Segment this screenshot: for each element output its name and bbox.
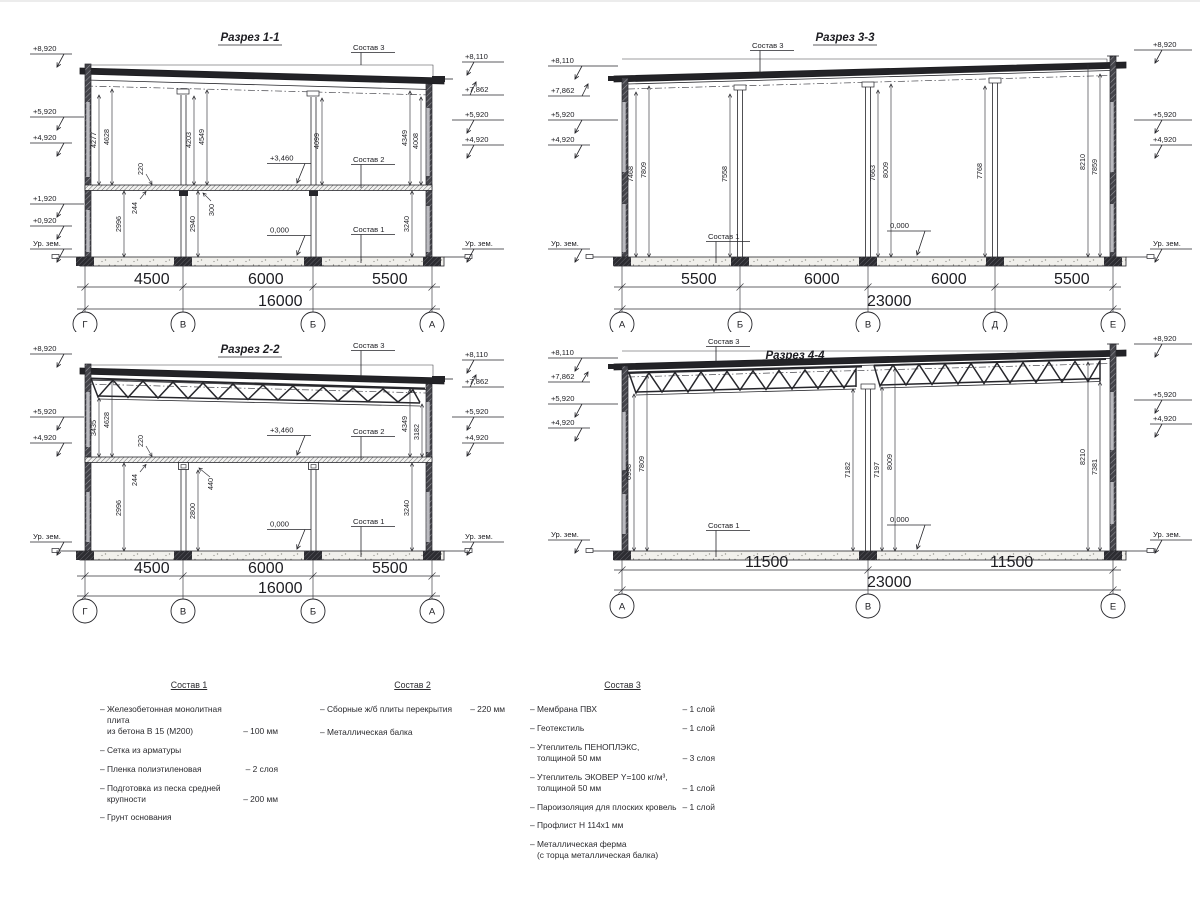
window-strip	[426, 402, 429, 452]
legend-item-text: – Геотекстиль	[530, 723, 584, 734]
legend-item: – Утеплитель ЭКОВЕР Y=100 кг/м³, толщино…	[530, 772, 715, 794]
dim-label: 7182	[843, 462, 852, 478]
dim-label: 7381	[1090, 459, 1099, 475]
level-mark-label: +3,460	[270, 154, 293, 163]
level-label: +4,920	[465, 433, 488, 442]
legend-sostav-2: Состав 2 – Сборные ж/б плиты перекрытия …	[320, 680, 505, 746]
dim-label: 7809	[637, 456, 646, 472]
callout-label: Состав 3	[752, 41, 784, 50]
dim-label: 220	[136, 435, 145, 447]
level-marks-right: +8,920 +5,920 +4,920 Ур. зем.	[1134, 334, 1192, 553]
dim-label: 8009	[885, 454, 894, 470]
dim-label: 7558	[720, 166, 729, 182]
section-1-1-title: Разрез 1-1	[218, 32, 282, 45]
legend-item-text: – Утеплитель ЭКОВЕР Y=100 кг/м³, толщино…	[530, 772, 668, 794]
level-marks-left: +8,110 +7,862 +5,920 +4,920 Ур. зем.	[548, 56, 618, 262]
legend-item-text: – Металлическая балка	[320, 727, 413, 738]
grid-bubble-label: А	[429, 320, 436, 331]
total-dim: 16000	[258, 293, 303, 310]
ground-slab	[80, 551, 444, 560]
grid-bubble-label: В	[180, 320, 186, 331]
level-marks-right: +8,110 +7,862 +5,920 +4,920 Ур. зем.	[452, 52, 504, 262]
legend-title: Состав 1	[100, 680, 278, 690]
dim-label: 4008	[411, 133, 420, 149]
level-marks-left: +8,920 +5,920 +4,920 +1,920 +0,920 Ур. з…	[30, 44, 84, 262]
level-label: +4,920	[551, 418, 574, 427]
grid-bubble-label: А	[619, 320, 626, 331]
level-marks-interior: 0,000	[887, 221, 931, 255]
level-label: Ур. зем.	[551, 239, 579, 248]
grid-bubble-label: Г	[82, 607, 87, 618]
level-label: Ур. зем.	[465, 532, 493, 541]
legend-item: – Сборные ж/б плиты перекрытия – 220 мм	[320, 704, 505, 715]
window-strip	[622, 412, 625, 470]
window-strip	[426, 108, 429, 176]
dim-label: 7663	[868, 165, 877, 181]
level-marks-left: +8,920 +5,920 +4,920 Ур. зем.	[30, 344, 84, 555]
legend-item: – Железобетонная монолитная плита из бет…	[100, 704, 278, 737]
window-strip	[622, 494, 625, 534]
section-title: Разрез 2-2	[220, 344, 280, 356]
window-strip	[86, 392, 89, 447]
dim-label: 4203	[184, 132, 193, 148]
callout-label: Состав 1	[353, 225, 385, 234]
level-label: +8,110	[465, 52, 488, 61]
span-dim: 5500	[681, 271, 717, 288]
window-strip	[1110, 482, 1113, 524]
level-label: Ур. зем.	[551, 530, 579, 539]
legend-item-value: – 1 слой	[677, 704, 715, 715]
grid-bubble-label: Е	[1110, 602, 1116, 613]
span-dim: 11500	[745, 554, 788, 571]
legend-item-text: – Профлист Н 114х1 мм	[530, 820, 623, 831]
dim-label: 4349	[400, 130, 409, 146]
columns	[179, 463, 319, 552]
level-marks-right: +8,920 +5,920 +4,920 Ур. зем.	[1134, 40, 1192, 262]
dim-label: 8009	[881, 162, 890, 178]
span-dim: 5500	[372, 560, 408, 577]
bottom-dimensions: 5500 6000 6000 5500 23000	[614, 266, 1121, 313]
legend-item-value: – 3 слоя	[677, 753, 715, 764]
dim-label: 2940	[188, 216, 197, 232]
grid-bubble-label: Б	[737, 320, 743, 331]
dim-label: 7859	[1090, 159, 1099, 175]
level-label: +5,920	[33, 407, 56, 416]
level-label: +8,920	[33, 44, 56, 53]
legend-item-text: – Сборные ж/б плиты перекрытия	[320, 704, 452, 715]
level-label: +4,920	[33, 433, 56, 442]
level-label: +8,110	[551, 348, 574, 357]
legend-item-text: – Пленка полиэтиленовая	[100, 764, 202, 775]
legend-sostav-3: Состав 3 – Мембрана ПВХ – 1 слой – Геоте…	[530, 680, 715, 869]
dim-label: 2996	[114, 500, 123, 516]
dim-label: 440	[206, 478, 215, 490]
dim-label: 3182	[412, 424, 421, 440]
level-marks-interior: +3,460 0,000	[267, 154, 311, 256]
level-mark-label: 0,000	[270, 520, 289, 529]
level-label: +8,110	[465, 350, 488, 359]
floor-slab-level2	[85, 185, 432, 191]
grid-bubble-label: В	[865, 320, 871, 331]
legend-title: Состав 2	[320, 680, 505, 690]
legend-item-text: – Железобетонная монолитная плита из бет…	[100, 704, 237, 737]
level-label: +5,920	[33, 107, 56, 116]
span-dim: 5500	[1054, 271, 1090, 288]
legend-item: – Грунт основания	[100, 812, 278, 823]
roof-gutter	[608, 364, 615, 369]
callout-label: Состав 2	[353, 427, 385, 436]
grid-bubbles: А Б В Д Е	[610, 312, 1125, 332]
roof-truss-bay2	[874, 359, 1106, 388]
legend-item-value: – 1 слой	[677, 783, 715, 794]
window-strip	[86, 492, 89, 542]
roof-truss	[91, 379, 425, 407]
materials-legend: Состав 1 – Железобетонная монолитная пли…	[0, 680, 1200, 900]
legend-item-value: – 1 слой	[677, 723, 715, 734]
dim-label: 4549	[197, 129, 206, 145]
level-label: +5,920	[1153, 390, 1176, 399]
legend-item: – Утеплитель ПЕНОПЛЭКС, толщиной 50 мм –…	[530, 742, 715, 764]
level-marks-interior: +3,460 0,000	[267, 426, 311, 550]
callout-label: Состав 2	[353, 155, 385, 164]
window-strip	[426, 206, 429, 252]
level-mark-label: +3,460	[270, 426, 293, 435]
span-dim: 5500	[372, 271, 408, 288]
grid-bubble-label: Б	[310, 607, 316, 618]
level-label: +5,920	[1153, 110, 1176, 119]
level-label: +7,862	[551, 372, 574, 381]
grid-bubble-label: А	[429, 607, 436, 618]
dim-label: 2996	[114, 216, 123, 232]
grid-bubble-label: Г	[82, 320, 87, 331]
level-label: +8,920	[33, 344, 56, 353]
callout-label: Состав 1	[353, 517, 385, 526]
dim-label: 8210	[1078, 154, 1087, 170]
level-label: +4,920	[33, 133, 56, 142]
section-title: Разрез 3-3	[815, 32, 875, 44]
span-dim: 4500	[134, 560, 170, 577]
building-structure	[52, 364, 472, 560]
span-dim: 6000	[248, 271, 284, 288]
grid-bubbles: Г В Б А	[73, 599, 444, 623]
window-strip	[1110, 102, 1113, 172]
dim-label: 300	[207, 204, 216, 216]
drawing-sheet: Разрез 1-1	[0, 0, 1200, 902]
section-1-1: Разрез 1-1	[0, 2, 540, 332]
grid-bubble-label: В	[865, 602, 871, 613]
level-label: Ур. зем.	[1153, 239, 1181, 248]
legend-item-text: – Сетка из арматуры	[100, 745, 181, 756]
legend-item-value: – 1 слой	[677, 802, 715, 813]
legend-item-value: – 2 слоя	[240, 764, 278, 775]
total-dim: 16000	[258, 580, 303, 597]
dim-label: 3435	[89, 420, 98, 436]
dim-label: 4099	[312, 133, 321, 149]
span-dim: 6000	[804, 271, 840, 288]
dim-label: 2800	[188, 503, 197, 519]
level-marks-right: +8,110 +7,862 +5,920 +4,920 Ур. зем.	[452, 350, 504, 555]
legend-item-value: – 100 мм	[237, 726, 278, 737]
dim-label: 220	[136, 163, 145, 175]
callout-label: Состав 1	[708, 521, 740, 530]
grid-bubble-label: А	[619, 602, 626, 613]
legend-item: – Металлическая ферма (с торца металличе…	[530, 839, 715, 861]
level-label: +0,920	[33, 216, 56, 225]
grid-bubble-label: Е	[1110, 320, 1116, 331]
roof-gutter	[432, 76, 445, 82]
legend-item-text: – Металлическая ферма (с торца металличе…	[530, 839, 658, 861]
legend-sostav-1: Состав 1 – Железобетонная монолитная пли…	[100, 680, 278, 831]
ground-slab	[80, 257, 444, 266]
level-label: +4,920	[1153, 414, 1176, 423]
grid-bubbles: А В Е	[610, 594, 1125, 618]
dim-label: 7768	[975, 163, 984, 179]
level-label: +5,920	[551, 394, 574, 403]
grid-bubbles: Г В Б А	[73, 312, 444, 332]
level-marks-left: +8,110 +7,862 +5,920 +4,920 Ур. зем.	[548, 348, 618, 553]
dim-label: 4349	[400, 416, 409, 432]
legend-item: – Сетка из арматуры	[100, 745, 278, 756]
legend-item-value: – 220 мм	[464, 704, 505, 715]
level-label: Ур. зем.	[465, 239, 493, 248]
legend-item-value: – 200 мм	[237, 794, 278, 805]
window-strip	[622, 204, 625, 252]
section-2-2: Разрез 2-2	[0, 332, 540, 632]
span-dim: 4500	[134, 271, 170, 288]
section-4-4: Разрез 4-4	[540, 332, 1200, 632]
level-label: +5,920	[465, 407, 488, 416]
span-dim: 6000	[248, 560, 284, 577]
window-strip	[86, 210, 89, 252]
level-mark-label: 0,000	[890, 515, 909, 524]
callout-label: Состав 3	[708, 337, 740, 346]
dim-label: 7468	[626, 166, 635, 182]
dim-label: 3240	[402, 500, 411, 516]
dim-label: 3240	[402, 216, 411, 232]
legend-item-text: – Пароизоляция для плоских кровель	[530, 802, 676, 813]
bottom-dimensions: 4500 6000 5500 16000	[77, 560, 440, 600]
material-callouts: Состав 3 Состав 2 Состав 1	[351, 341, 395, 557]
legend-item: – Металлическая балка	[320, 727, 505, 738]
level-mark-label: 0,000	[270, 226, 289, 235]
level-label: +8,920	[1153, 334, 1176, 343]
level-label: +4,920	[1153, 135, 1176, 144]
legend-title: Состав 3	[530, 680, 715, 690]
section-3-3: Разрез 3-3	[540, 2, 1200, 332]
level-mark-label: 0,000	[890, 221, 909, 230]
level-label: +7,862	[551, 86, 574, 95]
level-label: +7,862	[465, 85, 488, 94]
roof-gutter	[432, 376, 445, 382]
level-label: Ур. зем.	[1153, 530, 1181, 539]
bottom-dimensions: 4500 6000 5500 16000	[77, 266, 440, 313]
dim-label: 7809	[639, 162, 648, 178]
legend-item-text: – Утеплитель ПЕНОПЛЭКС, толщиной 50 мм	[530, 742, 639, 764]
legend-item: – Пленка полиэтиленовая – 2 слоя	[100, 764, 278, 775]
level-label: +8,920	[1153, 40, 1176, 49]
legend-item: – Мембрана ПВХ – 1 слой	[530, 704, 715, 715]
legend-item: – Геотекстиль – 1 слой	[530, 723, 715, 734]
level-label: Ур. зем.	[33, 532, 61, 541]
dim-label: 6998	[624, 464, 633, 480]
dim-label: 4628	[102, 129, 111, 145]
span-dim: 6000	[931, 271, 967, 288]
dim-label: 4628	[102, 412, 111, 428]
vertical-dimensions: 7468 7809 7558 7663 8009 7768 8210 7859	[626, 64, 1100, 257]
level-label: +5,920	[465, 110, 488, 119]
floor-slab-level2	[85, 457, 432, 463]
span-dim: 11500	[990, 554, 1033, 571]
section-2-2-title: Разрез 2-2	[218, 344, 282, 357]
legend-item: – Пароизоляция для плоских кровель – 1 с…	[530, 802, 715, 813]
dim-label: 7197	[872, 462, 881, 478]
section-3-3-title: Разрез 3-3	[813, 32, 877, 45]
dim-label: 4277	[89, 132, 98, 148]
building-structure	[586, 56, 1154, 266]
level-label: +4,920	[465, 135, 488, 144]
window-strip	[1110, 392, 1113, 450]
callout-label: Состав 3	[353, 43, 385, 52]
legend-item-text: – Подготовка из песка средней крупности	[100, 783, 221, 805]
callout-label: Состав 1	[708, 232, 740, 241]
grid-bubble-label: Б	[310, 320, 316, 331]
level-marks-interior: 0,000	[887, 515, 931, 549]
dim-label: 8210	[1078, 449, 1087, 465]
legend-item-text: – Мембрана ПВХ	[530, 704, 597, 715]
level-label: +1,920	[33, 194, 56, 203]
level-label: +7,862	[465, 377, 488, 386]
level-label: +4,920	[551, 135, 574, 144]
building-structure	[586, 344, 1154, 560]
grid-bubble-label: Д	[992, 320, 999, 331]
level-label: +5,920	[551, 110, 574, 119]
legend-item-text: – Грунт основания	[100, 812, 172, 823]
building-structure	[52, 64, 472, 266]
callout-label: Состав 3	[353, 341, 385, 350]
roof-gutter	[608, 76, 615, 81]
section-title: Разрез 1-1	[220, 32, 279, 44]
window-strip	[622, 102, 625, 172]
window-strip	[426, 492, 429, 542]
legend-item: – Подготовка из песка средней крупности …	[100, 783, 278, 805]
window-strip	[1110, 204, 1113, 252]
dim-label: 244	[130, 202, 139, 214]
dim-label: 244	[130, 474, 139, 486]
legend-item: – Профлист Н 114х1 мм	[530, 820, 715, 831]
total-dim: 23000	[867, 293, 912, 310]
level-label: +8,110	[551, 56, 574, 65]
grid-bubble-label: В	[180, 607, 186, 618]
total-dim: 23000	[867, 574, 912, 591]
level-label: Ур. зем.	[33, 239, 61, 248]
